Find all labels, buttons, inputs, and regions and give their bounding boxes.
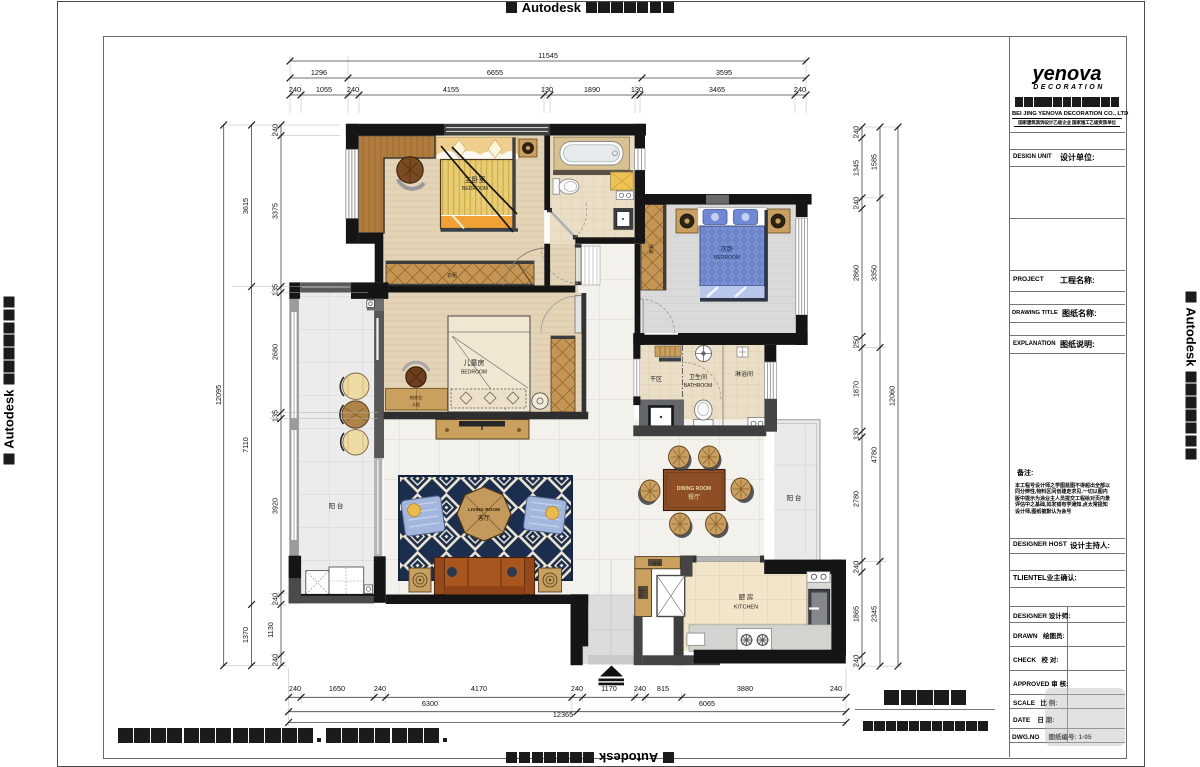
svg-text:240: 240 [852,197,861,209]
svg-text:BEDROOM: BEDROOM [714,255,740,261]
svg-text:3595: 3595 [716,68,732,77]
svg-text:餐厅: 餐厅 [688,493,700,501]
svg-text:鞋柜: 鞋柜 [653,561,662,568]
svg-text:1870: 1870 [852,381,861,397]
svg-text:240: 240 [830,684,842,693]
svg-text:3920: 3920 [271,498,280,514]
svg-text:7110: 7110 [241,437,250,453]
svg-text:240: 240 [852,126,861,138]
svg-text:2780: 2780 [852,491,861,507]
svg-text:主卧室: 主卧室 [465,175,486,184]
svg-text:3375: 3375 [271,203,280,219]
svg-text:135: 135 [271,410,280,422]
svg-text:130: 130 [631,85,643,94]
svg-text:LIVING ROOM: LIVING ROOM [468,507,500,513]
svg-text:3350: 3350 [870,265,879,281]
svg-text:250: 250 [852,336,861,348]
svg-text:130: 130 [541,85,553,94]
svg-text:家私: 家私 [648,244,655,254]
svg-text:240: 240 [794,85,806,94]
svg-text:1130: 1130 [266,622,275,638]
svg-text:1055: 1055 [316,85,332,94]
svg-text:6300: 6300 [422,699,438,708]
svg-text:815: 815 [657,684,669,693]
svg-text:4170: 4170 [471,684,487,693]
svg-text:卫生间: 卫生间 [689,373,707,381]
svg-text:客厅: 客厅 [478,514,490,522]
svg-text:2860: 2860 [852,265,861,281]
svg-text:240: 240 [571,684,583,693]
svg-text:240: 240 [634,684,646,693]
svg-text:BATHROOM: BATHROOM [684,383,713,389]
svg-text:衣柜: 衣柜 [447,272,457,279]
svg-text:淋浴间: 淋浴间 [735,370,753,378]
svg-text:2680: 2680 [271,344,280,360]
svg-text:次卧: 次卧 [721,244,735,253]
svg-text:3880: 3880 [737,684,753,693]
svg-text:斗柜: 斗柜 [412,401,420,408]
svg-text:DINING ROOM: DINING ROOM [677,486,711,492]
svg-text:240: 240 [289,85,301,94]
svg-text:1650: 1650 [329,684,345,693]
svg-text:干区: 干区 [650,376,662,383]
svg-text:12365: 12365 [553,710,573,719]
svg-text:240: 240 [852,561,861,573]
svg-text:1296: 1296 [311,68,327,77]
svg-text:6655: 6655 [487,68,503,77]
svg-text:240: 240 [347,85,359,94]
svg-text:阳 台: 阳 台 [329,501,344,510]
svg-text:3615: 3615 [241,198,250,214]
svg-text:11545: 11545 [538,51,558,60]
svg-text:240: 240 [289,684,301,693]
svg-text:240: 240 [374,684,386,693]
svg-text:2345: 2345 [870,606,879,622]
svg-text:130: 130 [852,428,861,440]
svg-text:鞋柜: 鞋柜 [638,588,645,597]
svg-text:4780: 4780 [870,447,879,463]
svg-text:4155: 4155 [443,85,459,94]
svg-text:1890: 1890 [584,85,600,94]
svg-text:1370: 1370 [241,627,250,643]
svg-text:1865: 1865 [852,606,861,622]
svg-text:阳 台: 阳 台 [787,493,802,502]
svg-text:1585: 1585 [870,154,879,170]
svg-text:1170: 1170 [601,684,617,693]
svg-text:240: 240 [271,593,280,605]
svg-text:BEDROOM: BEDROOM [461,370,487,376]
svg-text:厨 房: 厨 房 [739,592,754,601]
svg-text:1345: 1345 [852,160,861,176]
svg-text:12095: 12095 [214,385,223,405]
svg-text:儿童房: 儿童房 [464,358,485,367]
svg-text:梳妆台: 梳妆台 [410,394,423,401]
svg-text:3465: 3465 [709,85,725,94]
svg-text:240: 240 [852,655,861,667]
svg-text:135: 135 [271,284,280,296]
svg-text:KITCHEN: KITCHEN [734,605,758,611]
svg-text:12060: 12060 [888,386,897,406]
svg-text:6065: 6065 [699,699,715,708]
svg-text:240: 240 [271,124,280,136]
svg-text:BEDROOM: BEDROOM [462,186,488,192]
svg-text:240: 240 [271,654,280,666]
